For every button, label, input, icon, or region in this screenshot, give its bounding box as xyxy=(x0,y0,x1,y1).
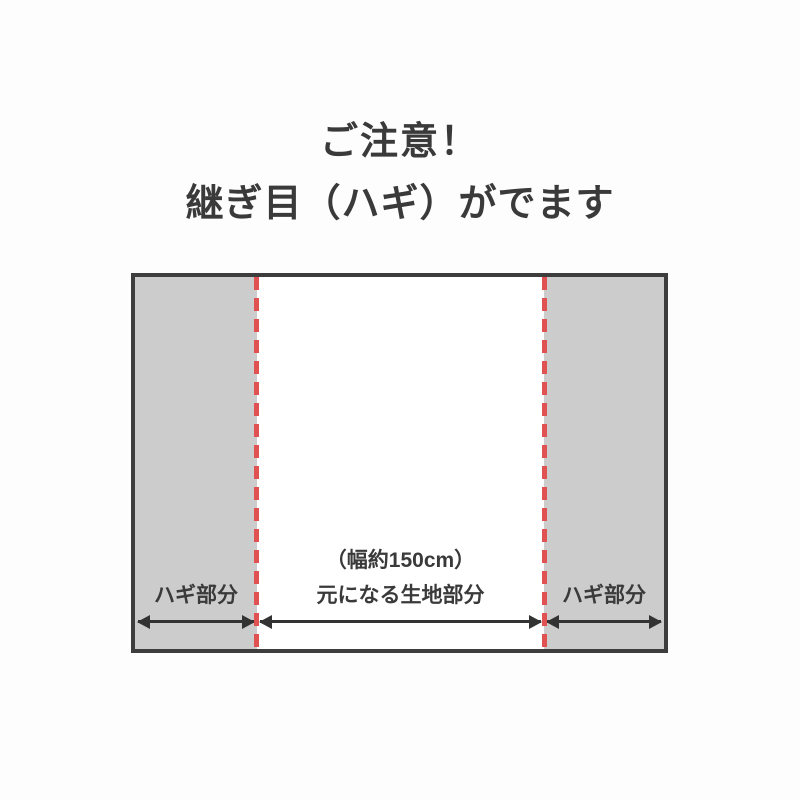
seam-dashed-line-right xyxy=(542,277,547,649)
base-fabric-panel: （幅約150cm） 元になる生地部分 xyxy=(257,277,544,649)
notice-title-line1: ご注意！ xyxy=(0,118,800,166)
left-width-arrow xyxy=(138,620,254,623)
base-fabric-label: 元になる生地部分 xyxy=(257,583,544,609)
notice-page: ご注意！ 継ぎ目（ハギ）がでます ハギ部分 （幅約150cm） 元になる生地部分… xyxy=(0,0,800,800)
seam-panel-left: ハギ部分 xyxy=(135,277,257,649)
notice-title: ご注意！ 継ぎ目（ハギ）がでます xyxy=(0,118,800,228)
center-width-arrow xyxy=(260,620,541,623)
base-fabric-labels: （幅約150cm） 元になる生地部分 xyxy=(257,548,544,609)
seam-dashed-line-left xyxy=(254,277,259,649)
base-fabric-width-note: （幅約150cm） xyxy=(257,548,544,574)
fabric-seam-diagram: ハギ部分 （幅約150cm） 元になる生地部分 ハギ部分 xyxy=(131,273,668,653)
seam-panel-right-label: ハギ部分 xyxy=(544,583,664,609)
seam-panel-left-label: ハギ部分 xyxy=(135,583,257,609)
seam-panel-right: ハギ部分 xyxy=(544,277,664,649)
notice-title-line2: 継ぎ目（ハギ）がでます xyxy=(0,180,800,228)
right-width-arrow xyxy=(547,620,661,623)
